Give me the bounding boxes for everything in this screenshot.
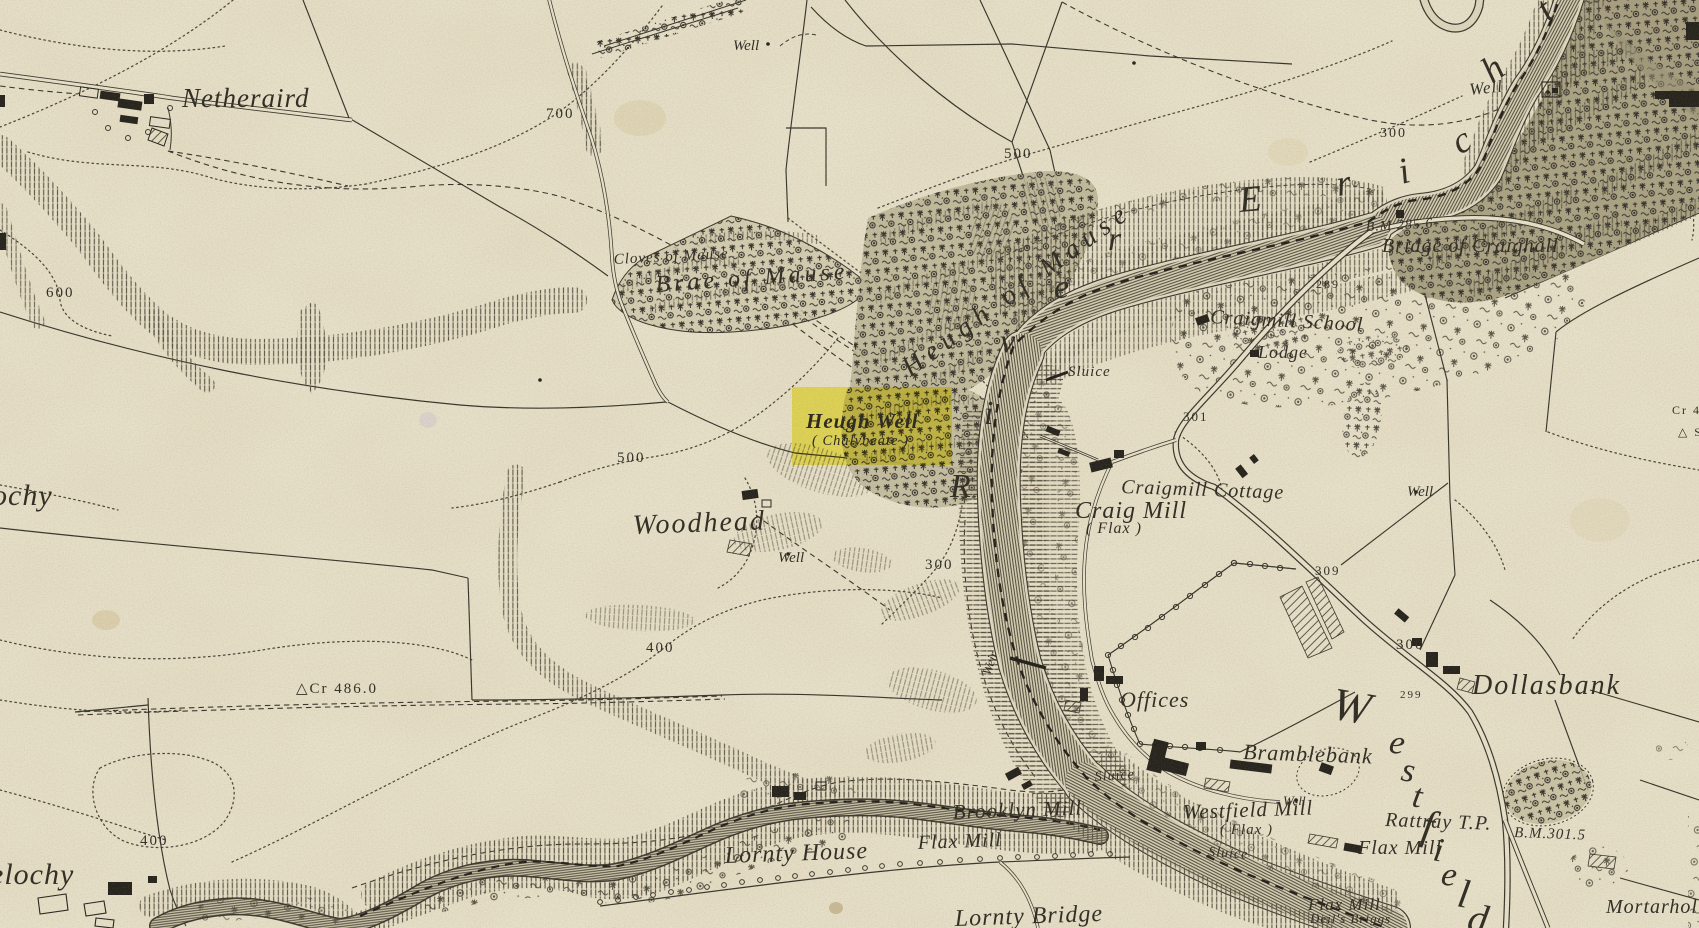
svg-text:( Chalybeate ): ( Chalybeate ) bbox=[812, 433, 909, 449]
svg-text:Heugh Well: Heugh Well bbox=[805, 409, 919, 433]
